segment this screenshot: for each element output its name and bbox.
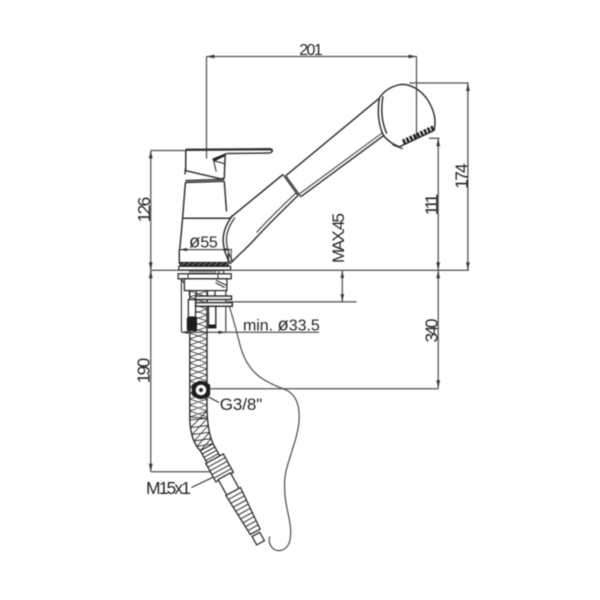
svg-text:126: 126 [134,197,154,223]
svg-text:M15x1: M15x1 [146,478,191,498]
svg-text:111: 111 [422,194,442,216]
svg-text:190: 190 [134,357,154,383]
svg-text:MAX.45: MAX.45 [329,213,348,263]
svg-text:min. ø33.5: min. ø33.5 [243,314,320,335]
svg-text:G3/8": G3/8" [220,395,263,414]
svg-text:ø55: ø55 [189,230,218,251]
svg-text:174: 174 [452,163,472,189]
svg-text:340: 340 [421,318,441,342]
svg-text:201: 201 [299,42,323,59]
